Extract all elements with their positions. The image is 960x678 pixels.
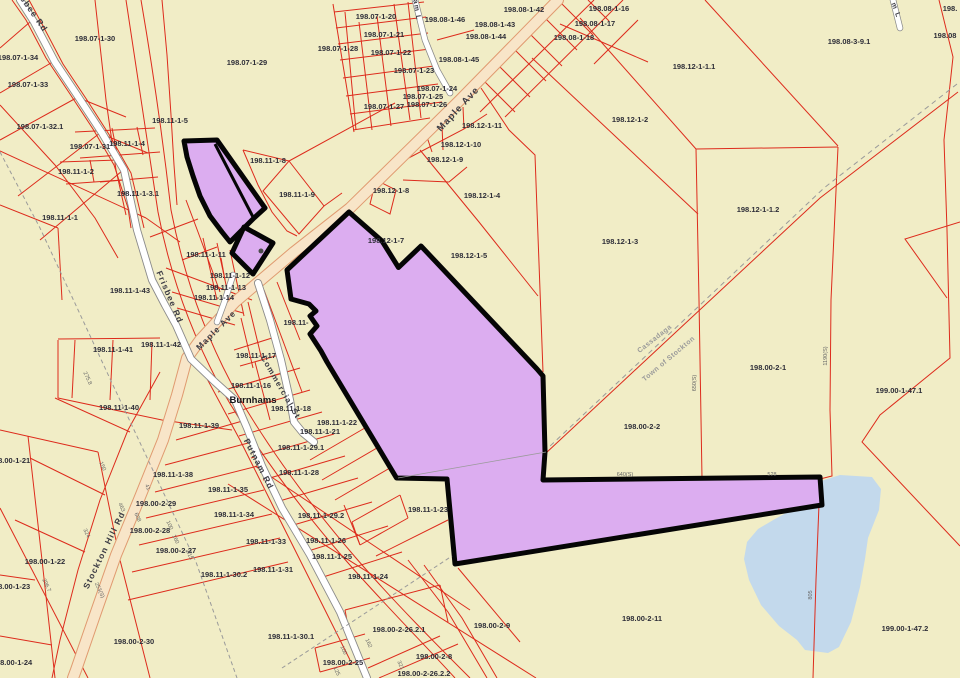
svg-text:805: 805 [808,590,814,599]
svg-text:198.11-1-40: 198.11-1-40 [99,403,139,412]
svg-text:198.11-1-30.1: 198.11-1-30.1 [268,632,314,641]
svg-text:198.07-1-29: 198.07-1-29 [227,58,267,67]
svg-text:198.00-1-22: 198.00-1-22 [25,557,65,566]
svg-text:198.12-1-1.1: 198.12-1-1.1 [673,62,716,71]
svg-text:198.: 198. [943,4,958,13]
svg-text:198.11-1-30.2: 198.11-1-30.2 [201,570,247,579]
svg-text:198.11-1-29.2: 198.11-1-29.2 [298,511,344,520]
svg-text:198.08-1-18: 198.08-1-18 [554,33,594,42]
svg-text:198.12-1-1.2: 198.12-1-1.2 [737,205,780,214]
svg-text:198.11-1-42: 198.11-1-42 [141,340,181,349]
svg-text:198.00-2-11: 198.00-2-11 [622,614,662,623]
svg-text:198.11-1-38: 198.11-1-38 [153,470,193,479]
svg-text:198.11-1-28: 198.11-1-28 [279,468,319,477]
svg-text:198.00-1-21: 198.00-1-21 [0,456,30,465]
svg-text:198.00-2-1: 198.00-2-1 [750,363,786,372]
svg-text:198.00-2-28: 198.00-2-28 [130,526,170,535]
svg-text:198.12-1-10: 198.12-1-10 [441,140,481,149]
svg-text:198.12-1-9: 198.12-1-9 [427,155,463,164]
svg-text:198.08-1-16: 198.08-1-16 [589,4,629,13]
svg-text:198.11-1-2: 198.11-1-2 [58,167,94,176]
svg-text:198.11-1-31: 198.11-1-31 [253,565,293,574]
svg-text:650(S): 650(S) [692,375,698,392]
svg-text:198.07-1-30: 198.07-1-30 [75,34,115,43]
svg-text:198.11-1-4: 198.11-1-4 [109,139,146,148]
svg-text:199.00-1-47.2: 199.00-1-47.2 [882,624,929,633]
svg-text:198.11-1-1: 198.11-1-1 [42,213,78,222]
svg-text:198.11-1-16: 198.11-1-16 [231,381,271,390]
svg-text:198.11-1-33: 198.11-1-33 [246,537,286,546]
svg-text:198.12-1-3: 198.12-1-3 [602,237,638,246]
svg-text:198.00-1-23: 198.00-1-23 [0,582,30,591]
svg-text:Burnhams: Burnhams [230,395,277,406]
svg-text:198.07-1-32.1: 198.07-1-32.1 [17,122,64,131]
svg-text:198.11-1-35: 198.11-1-35 [208,485,248,494]
svg-text:198.00-2-25: 198.00-2-25 [323,658,363,667]
svg-text:198.00-2-26.2.2: 198.00-2-26.2.2 [398,669,451,678]
svg-text:198.08-1-17: 198.08-1-17 [575,19,615,28]
svg-text:198.11-1-13: 198.11-1-13 [206,283,246,292]
svg-text:198.00-2-9: 198.00-2-9 [474,621,510,630]
svg-text:198.11-1-14: 198.11-1-14 [194,293,235,302]
svg-text:198.11-: 198.11- [283,318,309,327]
svg-text:198.11-1-21: 198.11-1-21 [300,427,340,436]
svg-text:198.11-1-3.1: 198.11-1-3.1 [117,189,159,198]
svg-text:198.11-1-22: 198.11-1-22 [317,418,357,427]
svg-text:198.11-1-23: 198.11-1-23 [408,505,448,514]
svg-text:198.11-1-34: 198.11-1-34 [214,510,255,519]
svg-text:198.00-2-2: 198.00-2-2 [624,422,660,431]
svg-text:198.12-1-7: 198.12-1-7 [368,236,404,245]
svg-text:198.08-1-46: 198.08-1-46 [425,15,465,24]
svg-text:198.08-3-9.1: 198.08-3-9.1 [828,37,871,46]
svg-text:198.11-1-26: 198.11-1-26 [306,536,346,545]
svg-text:1190(S): 1190(S) [823,346,829,365]
svg-text:198.08-1-43: 198.08-1-43 [475,20,515,29]
svg-text:198.08-1-42: 198.08-1-42 [504,5,544,14]
svg-text:198.08-1-44: 198.08-1-44 [466,32,507,41]
svg-text:198.07-1-31: 198.07-1-31 [70,142,110,151]
svg-text:198.07-1-28: 198.07-1-28 [318,44,358,53]
svg-text:198.00-1-24: 198.00-1-24 [0,658,33,667]
svg-text:198.00-2-8: 198.00-2-8 [416,652,452,661]
svg-text:198.11-1-12: 198.11-1-12 [210,271,250,280]
svg-text:528: 528 [767,472,776,478]
svg-text:198.07-1-27: 198.07-1-27 [364,102,404,111]
svg-text:198.00-2-30: 198.00-2-30 [114,637,154,646]
svg-text:198.11-1-24: 198.11-1-24 [348,572,389,581]
svg-text:198.00-2-29: 198.00-2-29 [136,499,176,508]
svg-text:198.12-1-5: 198.12-1-5 [451,251,487,260]
svg-text:198.11-1-9: 198.11-1-9 [279,190,315,199]
svg-text:198.12-1-8: 198.12-1-8 [373,186,409,195]
svg-text:198.07-1-21: 198.07-1-21 [364,30,404,39]
svg-text:198.12-1-11: 198.12-1-11 [462,121,502,130]
svg-text:198.07-1-34: 198.07-1-34 [0,53,39,62]
svg-text:198.11-1-39: 198.11-1-39 [179,421,219,430]
svg-text:199.00-1-47.1: 199.00-1-47.1 [876,386,923,395]
svg-text:198.11-1-8: 198.11-1-8 [250,156,286,165]
svg-text:198.11-1-29.1: 198.11-1-29.1 [278,443,324,452]
svg-text:198.11-1-25: 198.11-1-25 [312,552,352,561]
svg-text:198.12-1-4: 198.12-1-4 [464,191,501,200]
svg-text:198.08: 198.08 [934,31,957,40]
svg-text:198.11-1-41: 198.11-1-41 [93,345,133,354]
svg-text:198.11-1-5: 198.11-1-5 [152,116,188,125]
svg-text:198.11-1-11: 198.11-1-11 [186,250,226,259]
svg-text:198.11-1-43: 198.11-1-43 [110,286,150,295]
svg-text:198.07-1-33: 198.07-1-33 [8,80,48,89]
svg-text:198.00-2-26.2.1: 198.00-2-26.2.1 [373,625,426,634]
svg-text:198.12-1-2: 198.12-1-2 [612,115,648,124]
svg-text:198.07-1-20: 198.07-1-20 [356,12,396,21]
svg-text:198.07-1-22: 198.07-1-22 [371,48,411,57]
svg-text:198.07-1-26: 198.07-1-26 [407,100,447,109]
svg-text:198.07-1-23: 198.07-1-23 [394,66,434,75]
svg-text:198.08-1-45: 198.08-1-45 [439,55,479,64]
svg-text:640(S): 640(S) [617,472,634,478]
